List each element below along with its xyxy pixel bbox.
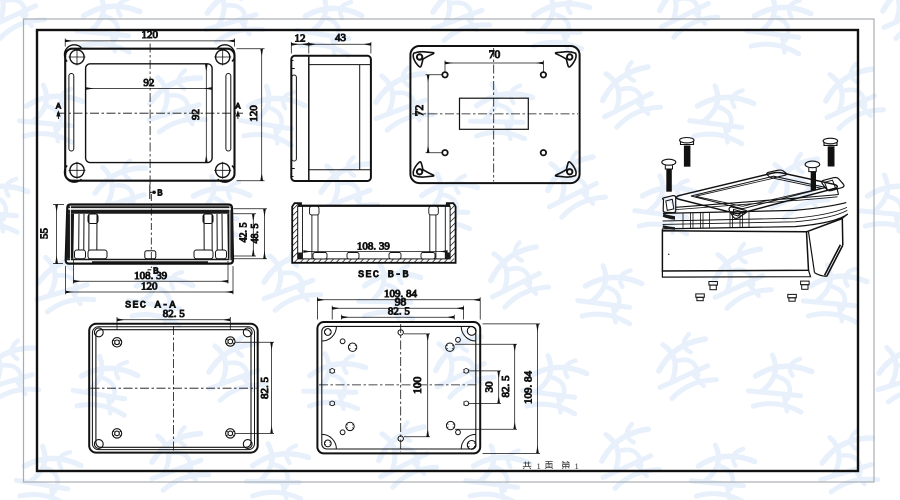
svg-text:120: 120 (248, 105, 260, 122)
svg-text:120: 120 (141, 281, 158, 293)
svg-text:55: 55 (39, 228, 51, 240)
svg-text:82. 5: 82. 5 (500, 375, 512, 398)
svg-text:30: 30 (484, 381, 496, 393)
svg-text:92: 92 (190, 109, 202, 120)
svg-text:43: 43 (335, 32, 347, 44)
svg-text:48. 5: 48. 5 (250, 224, 261, 244)
svg-text:A: A (235, 102, 241, 112)
svg-text:42. 5: 42. 5 (238, 223, 249, 243)
svg-text:108. 39: 108. 39 (357, 241, 391, 253)
svg-text:82. 5: 82. 5 (259, 377, 271, 400)
svg-text:A: A (56, 102, 62, 112)
svg-text:100: 100 (412, 376, 424, 394)
svg-text:1: 1 (537, 461, 541, 471)
svg-text:82. 5: 82. 5 (163, 308, 186, 320)
svg-text:70: 70 (489, 49, 501, 61)
svg-text:1: 1 (575, 461, 579, 471)
svg-text:SEC B-B: SEC B-B (358, 270, 410, 281)
svg-text:82. 5: 82. 5 (388, 306, 411, 318)
svg-text:72: 72 (414, 105, 426, 117)
svg-text:12: 12 (295, 32, 306, 44)
svg-text:92: 92 (143, 77, 154, 89)
svg-text:B: B (157, 188, 162, 198)
svg-text:120: 120 (142, 29, 159, 41)
svg-text:109. 84: 109. 84 (522, 371, 534, 405)
